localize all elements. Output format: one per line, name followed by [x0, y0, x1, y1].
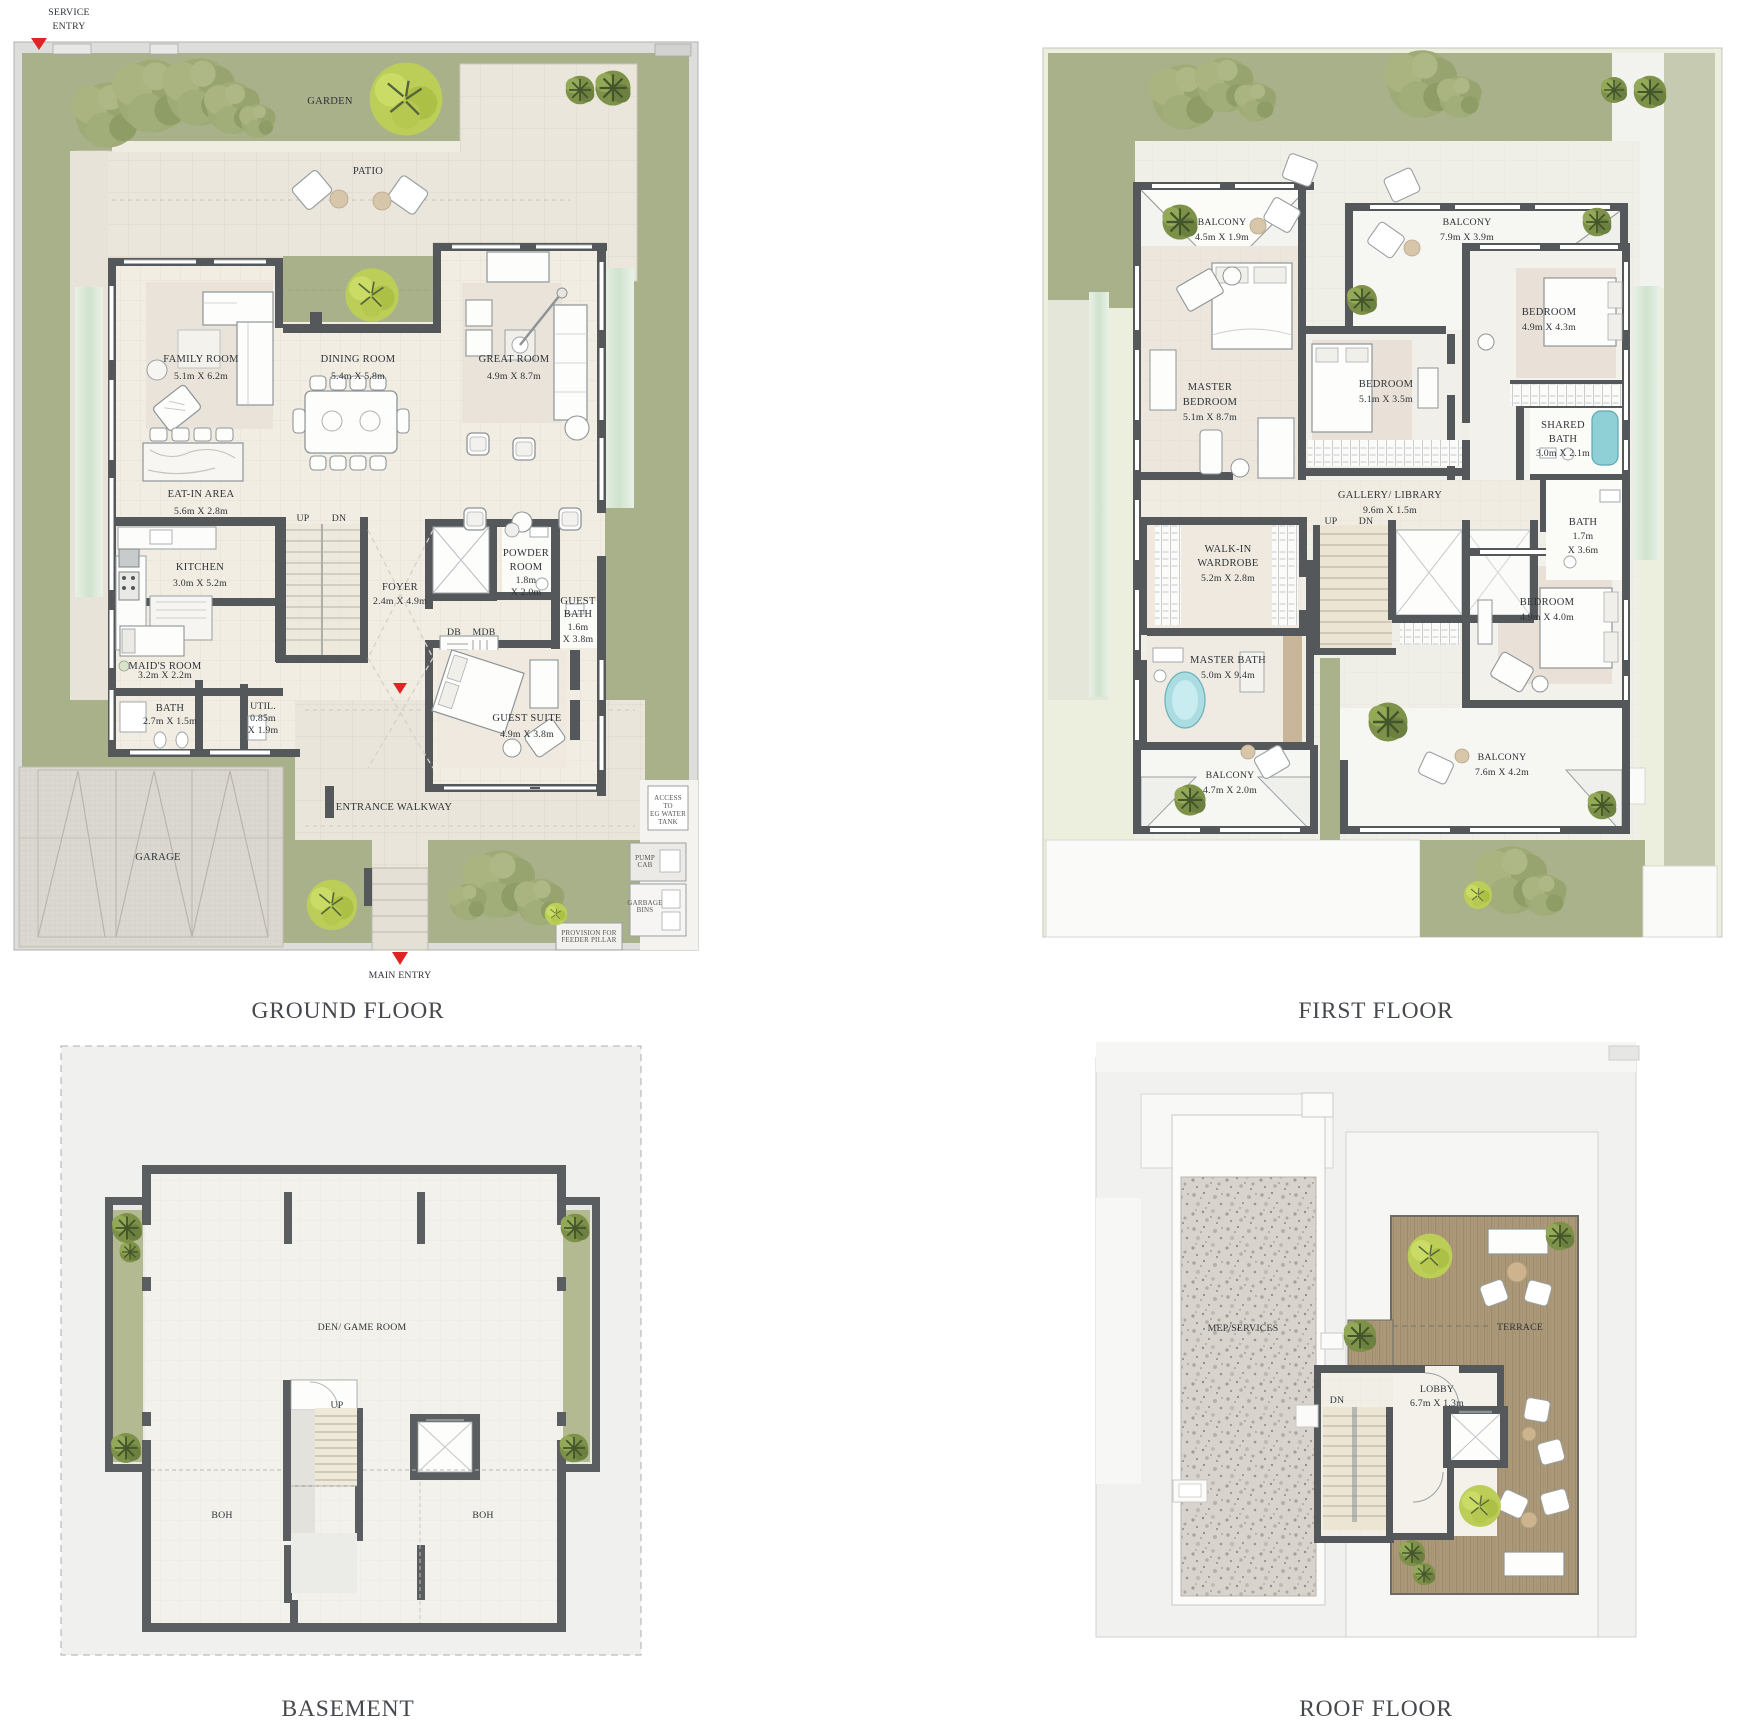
svg-text:UP: UP	[297, 513, 310, 524]
svg-text:KITCHEN: KITCHEN	[176, 562, 224, 573]
svg-text:DN: DN	[1330, 1395, 1345, 1406]
svg-text:BATH: BATH	[564, 609, 593, 620]
svg-text:TANK: TANK	[658, 818, 678, 826]
svg-text:5.1m X 3.5m: 5.1m X 3.5m	[1359, 394, 1413, 405]
svg-text:MEP/SERVICES: MEP/SERVICES	[1208, 1323, 1279, 1334]
svg-text:X 1.9m: X 1.9m	[248, 725, 279, 736]
svg-text:LOBBY: LOBBY	[1420, 1384, 1454, 1395]
svg-text:ACCESS: ACCESS	[654, 794, 682, 802]
svg-text:GUEST: GUEST	[560, 596, 596, 607]
svg-text:1.8m: 1.8m	[516, 575, 537, 586]
svg-text:WARDROBE: WARDROBE	[1197, 558, 1258, 569]
svg-text:4.9m X 3.8m: 4.9m X 3.8m	[500, 729, 554, 740]
svg-text:7.6m X 4.2m: 7.6m X 4.2m	[1475, 767, 1529, 778]
svg-text:1.6m: 1.6m	[568, 622, 589, 633]
svg-text:5.1m X 8.7m: 5.1m X 8.7m	[1183, 412, 1237, 423]
svg-text:GARDEN: GARDEN	[307, 96, 353, 107]
svg-text:MDB: MDB	[473, 627, 496, 638]
svg-text:MASTER: MASTER	[1188, 382, 1232, 393]
svg-text:5.2m X 2.8m: 5.2m X 2.8m	[1201, 573, 1255, 584]
svg-text:GALLERY/ LIBRARY: GALLERY/ LIBRARY	[1338, 490, 1442, 501]
svg-text:FEEDER PILLAR: FEEDER PILLAR	[561, 936, 616, 944]
svg-text:FIRST FLOOR: FIRST FLOOR	[1298, 998, 1453, 1024]
svg-text:BEDROOM: BEDROOM	[1520, 597, 1575, 608]
svg-text:X 3.8m: X 3.8m	[563, 634, 594, 645]
svg-text:5.6m X 2.8m: 5.6m X 2.8m	[174, 506, 228, 517]
svg-text:BALCONY: BALCONY	[1206, 770, 1255, 781]
svg-text:FAMILY ROOM: FAMILY ROOM	[163, 354, 239, 365]
svg-text:POWDER: POWDER	[503, 548, 549, 559]
svg-text:WALK-IN: WALK-IN	[1204, 544, 1251, 555]
svg-text:BATH: BATH	[1549, 434, 1578, 445]
svg-text:FOYER: FOYER	[382, 582, 418, 593]
svg-text:X 2.0m: X 2.0m	[511, 587, 542, 598]
svg-text:GUEST SUITE: GUEST SUITE	[492, 713, 561, 724]
svg-text:BOH: BOH	[472, 1510, 493, 1521]
svg-text:BATH: BATH	[156, 703, 185, 714]
svg-text:ROOF FLOOR: ROOF FLOOR	[1299, 1696, 1453, 1722]
svg-text:ENTRY: ENTRY	[52, 21, 85, 32]
svg-text:ENTRANCE WALKWAY: ENTRANCE WALKWAY	[336, 802, 453, 813]
svg-text:4.9m X 4.0m: 4.9m X 4.0m	[1520, 612, 1574, 623]
svg-text:2.4m X 4.9m: 2.4m X 4.9m	[373, 596, 427, 607]
svg-text:4.5m X 1.9m: 4.5m X 1.9m	[1195, 232, 1249, 243]
svg-text:4.9m X 4.3m: 4.9m X 4.3m	[1522, 322, 1576, 333]
svg-text:BALCONY: BALCONY	[1478, 752, 1527, 763]
svg-text:DN: DN	[332, 513, 347, 524]
svg-text:5.0m X 9.4m: 5.0m X 9.4m	[1201, 670, 1255, 681]
svg-text:3.0m X 5.2m: 3.0m X 5.2m	[173, 578, 227, 589]
svg-text:CAB: CAB	[638, 861, 653, 869]
svg-text:UP: UP	[331, 1400, 344, 1411]
svg-text:MAIN ENTRY: MAIN ENTRY	[369, 970, 432, 981]
svg-text:DN: DN	[1359, 516, 1374, 527]
svg-text:BEDROOM: BEDROOM	[1359, 379, 1414, 390]
svg-text:6.7m X 1.3m: 6.7m X 1.3m	[1410, 1398, 1464, 1409]
svg-text:0.85m: 0.85m	[250, 713, 276, 724]
svg-text:X 3.6m: X 3.6m	[1568, 545, 1599, 556]
svg-text:DEN/ GAME ROOM: DEN/ GAME ROOM	[318, 1322, 407, 1333]
svg-text:BALCONY: BALCONY	[1443, 217, 1492, 228]
svg-text:5.1m X 6.2m: 5.1m X 6.2m	[174, 371, 228, 382]
svg-text:9.6m X 1.5m: 9.6m X 1.5m	[1363, 505, 1417, 516]
svg-text:BEDROOM: BEDROOM	[1522, 307, 1577, 318]
svg-text:SERVICE: SERVICE	[48, 7, 89, 18]
svg-text:4.9m X 8.7m: 4.9m X 8.7m	[487, 371, 541, 382]
svg-text:5.4m X 5.8m: 5.4m X 5.8m	[331, 371, 385, 382]
svg-text:BASEMENT: BASEMENT	[281, 1696, 414, 1722]
svg-text:TERRACE: TERRACE	[1497, 1322, 1543, 1333]
svg-text:ROOM: ROOM	[510, 562, 543, 573]
svg-text:UTIL.: UTIL.	[250, 701, 276, 712]
svg-text:GROUND FLOOR: GROUND FLOOR	[251, 998, 444, 1024]
svg-text:7.9m X 3.9m: 7.9m X 3.9m	[1440, 232, 1494, 243]
svg-text:SHARED: SHARED	[1541, 420, 1585, 431]
svg-text:BATH: BATH	[1569, 517, 1598, 528]
svg-text:3.2m X 2.2m: 3.2m X 2.2m	[138, 670, 192, 681]
svg-text:TO: TO	[663, 802, 673, 810]
svg-text:MASTER BATH: MASTER BATH	[1190, 655, 1266, 666]
svg-text:BALCONY: BALCONY	[1198, 217, 1247, 228]
svg-text:GREAT ROOM: GREAT ROOM	[479, 354, 550, 365]
svg-text:DINING ROOM: DINING ROOM	[321, 354, 396, 365]
svg-text:BINS: BINS	[637, 906, 654, 914]
svg-text:1.7m: 1.7m	[1573, 531, 1594, 542]
svg-text:3.0m X 2.1m: 3.0m X 2.1m	[1536, 448, 1590, 459]
svg-text:GARAGE: GARAGE	[135, 852, 181, 863]
svg-text:PATIO: PATIO	[353, 166, 383, 177]
svg-text:DB: DB	[447, 627, 461, 638]
svg-text:4.7m X 2.0m: 4.7m X 2.0m	[1203, 785, 1257, 796]
svg-text:EAT-IN AREA: EAT-IN AREA	[168, 489, 235, 500]
svg-text:2.7m X 1.5m: 2.7m X 1.5m	[143, 716, 197, 727]
svg-text:UP: UP	[1325, 516, 1338, 527]
svg-text:EG WATER: EG WATER	[650, 810, 686, 818]
svg-text:BEDROOM: BEDROOM	[1183, 397, 1238, 408]
svg-text:BOH: BOH	[211, 1510, 232, 1521]
